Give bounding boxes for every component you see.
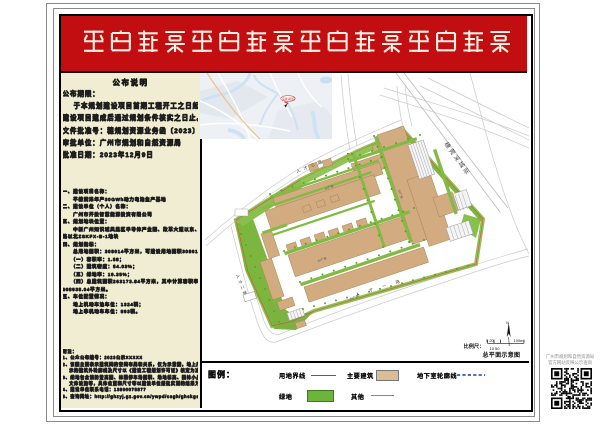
svg-text:比例尺：: 比例尺： [464, 342, 485, 350]
svg-text:0 20: 0 20 [486, 338, 495, 343]
svg-text:总平面示意图: 总平面示意图 [483, 351, 521, 359]
svg-text:凤凰湖园区: 凤凰湖园区 [282, 97, 295, 101]
svg-text:100m: 100m [514, 338, 525, 343]
svg-text:10 50: 10 50 [490, 346, 501, 351]
